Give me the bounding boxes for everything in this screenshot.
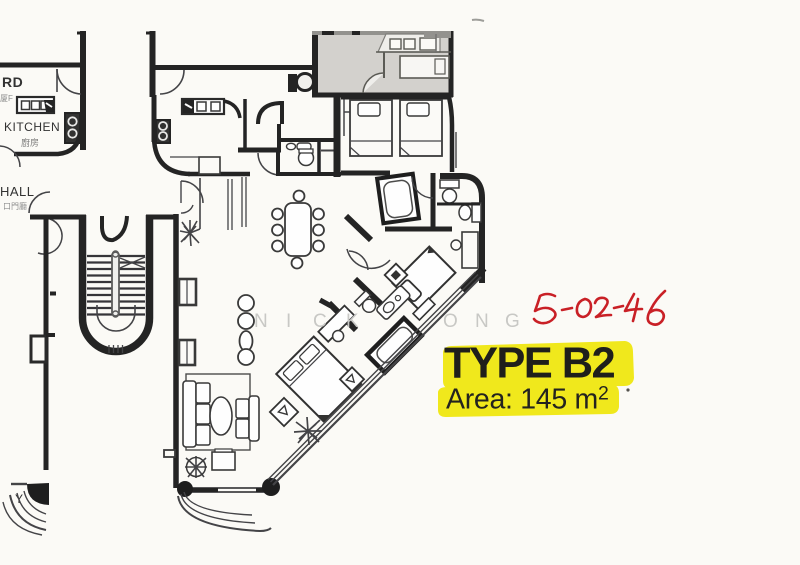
svg-text:廚房: 廚房 [21, 137, 39, 148]
svg-text:HALL: HALL [0, 184, 35, 199]
svg-text:N: N [254, 311, 268, 332]
svg-text:RD: RD [2, 74, 23, 90]
svg-text:Area: 145 m2: Area: 145 m2 [446, 383, 609, 416]
svg-text:C: C [313, 311, 327, 332]
svg-text:口門廳: 口門廳 [3, 201, 27, 211]
svg-text:O: O [443, 311, 458, 332]
svg-text:TYPE B2: TYPE B2 [444, 340, 615, 388]
svg-text:厦F: 厦F [0, 94, 13, 103]
svg-text:I: I [286, 311, 291, 332]
svg-text:KITCHEN: KITCHEN [4, 120, 60, 134]
svg-text:N: N [475, 311, 489, 332]
svg-text:K: K [346, 311, 359, 332]
svg-text:G: G [505, 311, 520, 332]
